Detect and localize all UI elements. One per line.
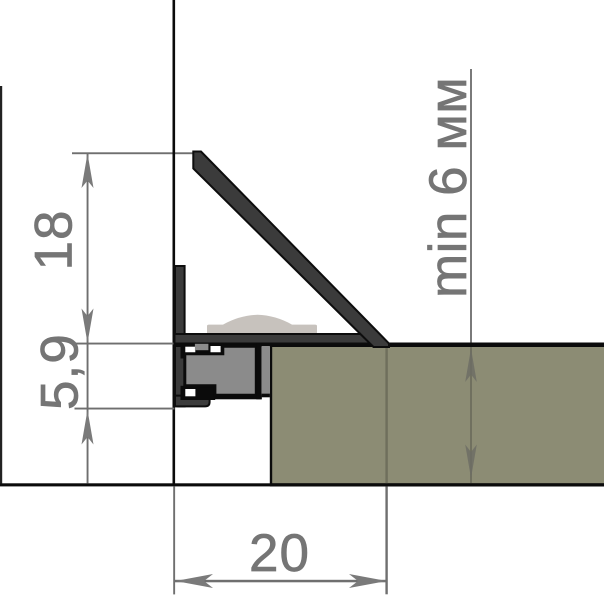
- svg-text:20: 20: [249, 524, 310, 583]
- svg-text:18: 18: [25, 210, 84, 271]
- svg-text:5,9: 5,9: [31, 333, 90, 410]
- svg-text:min 6 мм: min 6 мм: [419, 77, 478, 298]
